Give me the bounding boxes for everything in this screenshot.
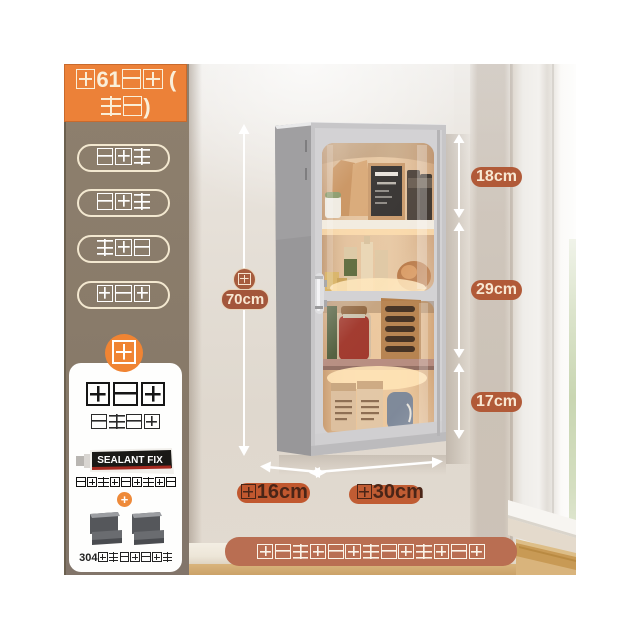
svg-text:SEALANT FIX: SEALANT FIX	[97, 455, 163, 466]
